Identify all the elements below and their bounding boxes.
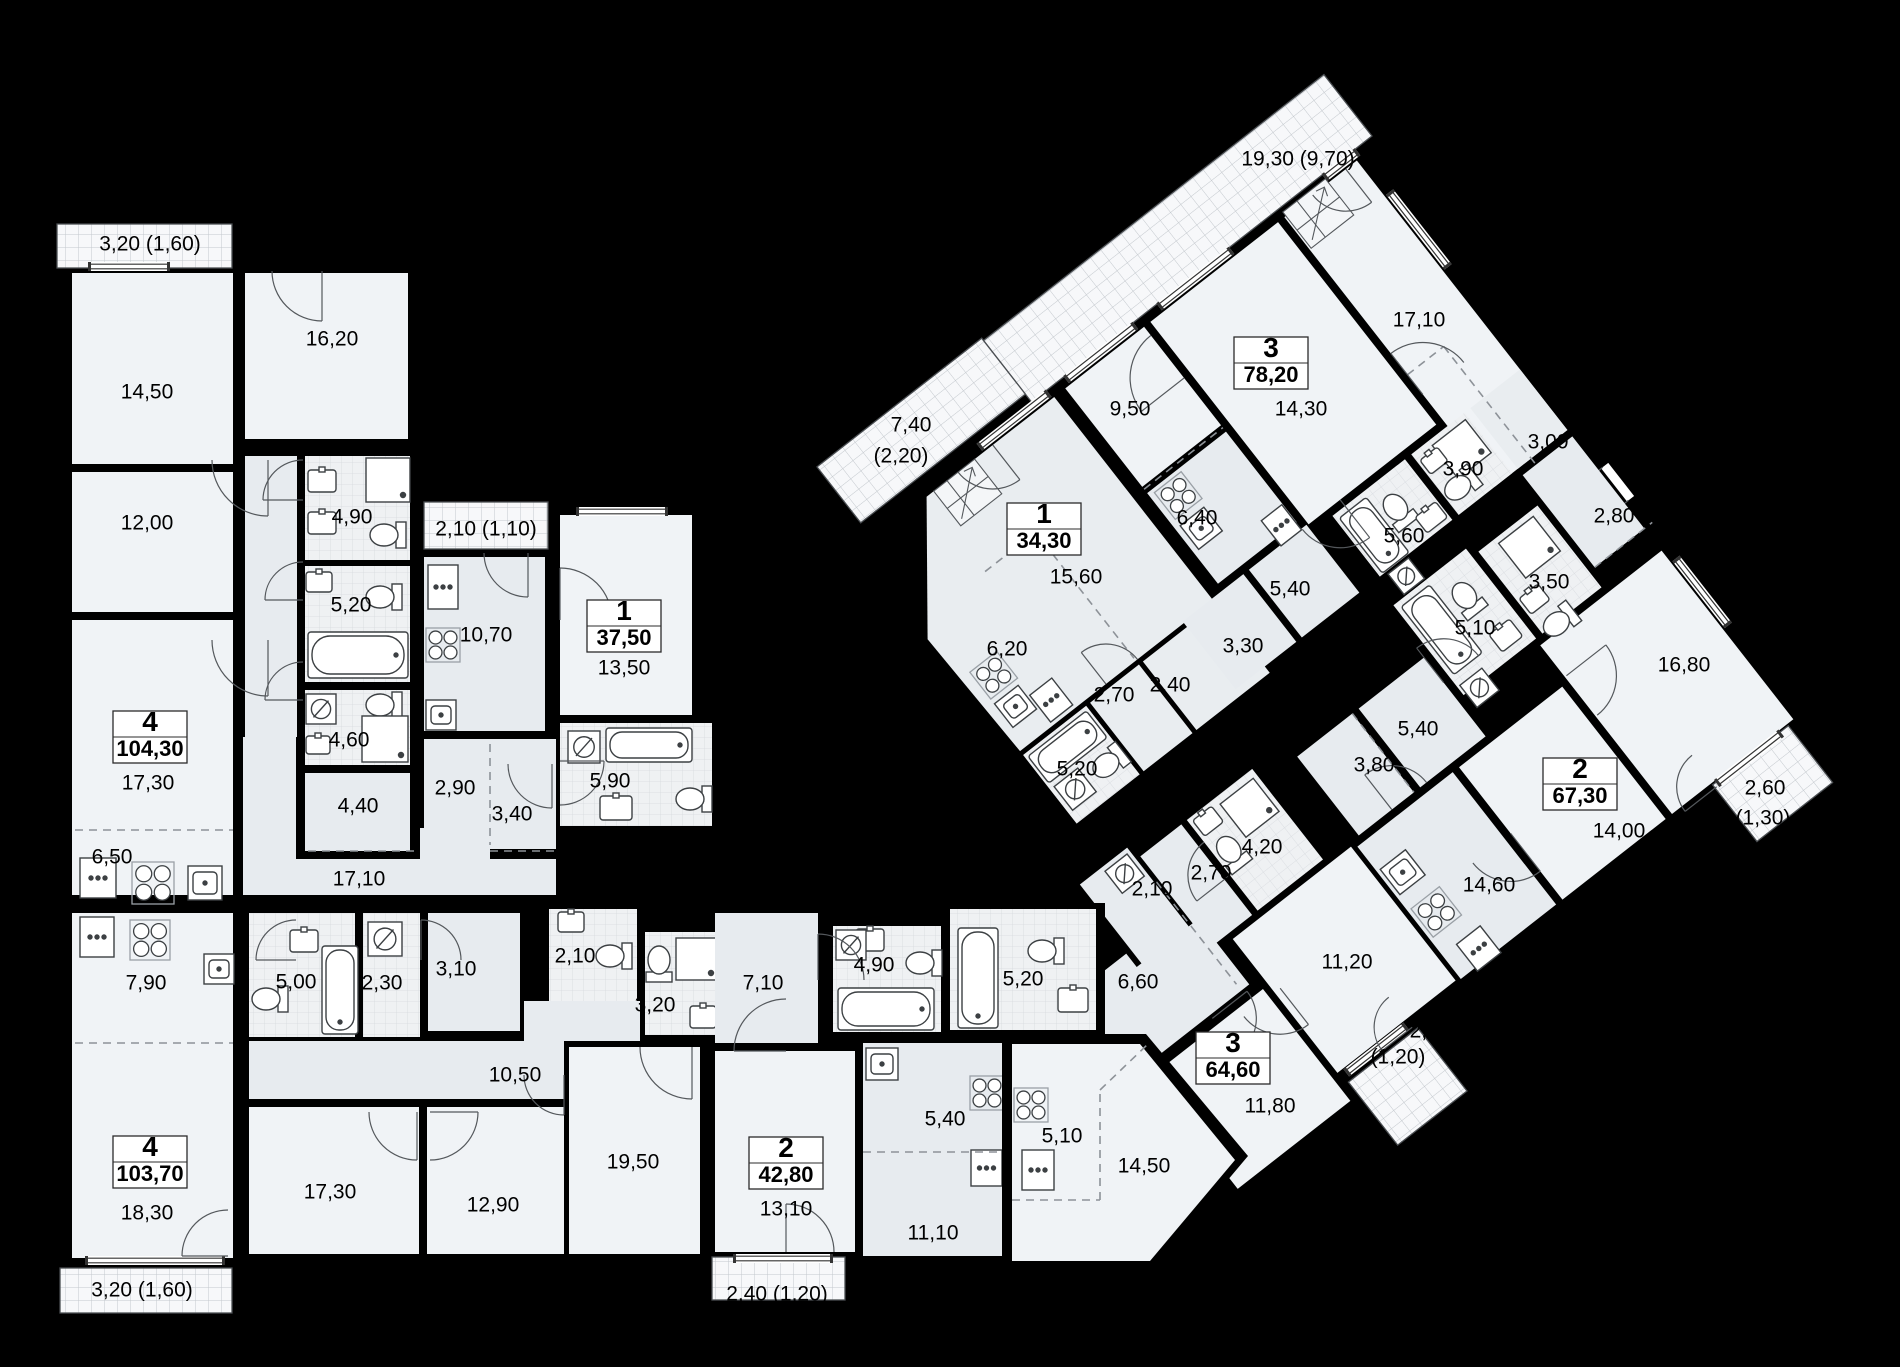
svg-text:3,80: 3,80 [1354, 753, 1395, 776]
svg-text:2,40: 2,40 [1150, 673, 1191, 696]
svg-text:4: 4 [142, 706, 158, 737]
svg-text:19,50: 19,50 [607, 1150, 660, 1173]
svg-text:2,10: 2,10 [1132, 877, 1173, 900]
svg-text:3: 3 [1263, 332, 1279, 363]
svg-text:5,20: 5,20 [1003, 967, 1044, 990]
svg-text:11,80: 11,80 [1245, 1094, 1296, 1117]
svg-text:5,10: 5,10 [1042, 1124, 1083, 1147]
svg-text:2,70: 2,70 [1191, 861, 1232, 884]
svg-text:6,50: 6,50 [92, 845, 133, 868]
svg-text:1: 1 [1036, 498, 1052, 529]
svg-text:14,50: 14,50 [1118, 1154, 1171, 1177]
svg-text:103,70: 103,70 [116, 1161, 183, 1186]
svg-text:2,40 (1,20): 2,40 (1,20) [726, 1282, 828, 1305]
svg-text:3,40: 3,40 [492, 802, 533, 825]
svg-text:11,10: 11,10 [908, 1221, 959, 1244]
svg-text:16,80: 16,80 [1658, 653, 1711, 676]
svg-text:6,40: 6,40 [1177, 506, 1218, 529]
svg-text:4,40: 4,40 [338, 794, 379, 817]
svg-text:13,50: 13,50 [598, 656, 651, 679]
svg-text:11,20: 11,20 [1322, 950, 1373, 973]
svg-text:3,20 (1,60): 3,20 (1,60) [91, 1278, 193, 1301]
svg-text:5,20: 5,20 [331, 593, 372, 616]
svg-text:19,30 (9,70): 19,30 (9,70) [1241, 147, 1354, 170]
svg-text:2,70: 2,70 [1094, 683, 1135, 706]
svg-text:2,10: 2,10 [555, 944, 596, 967]
svg-text:18,30: 18,30 [121, 1201, 174, 1224]
svg-text:4,90: 4,90 [854, 953, 895, 976]
svg-text:5,90: 5,90 [590, 769, 631, 792]
svg-text:2,80: 2,80 [1594, 504, 1635, 527]
svg-text:(1,30): (1,30) [1736, 806, 1791, 829]
svg-text:5,10: 5,10 [1455, 616, 1496, 639]
svg-text:1: 1 [616, 595, 632, 626]
svg-text:17,30: 17,30 [304, 1180, 357, 1203]
svg-text:2: 2 [778, 1132, 794, 1163]
svg-text:3,20 (1,60): 3,20 (1,60) [99, 232, 201, 255]
svg-text:2,30: 2,30 [362, 971, 403, 994]
svg-text:12,90: 12,90 [467, 1193, 520, 1216]
svg-text:5,40: 5,40 [925, 1107, 966, 1130]
svg-text:17,30: 17,30 [122, 771, 175, 794]
svg-text:4,90: 4,90 [332, 505, 373, 528]
svg-text:5,00: 5,00 [276, 970, 317, 993]
svg-text:6,20: 6,20 [987, 637, 1028, 660]
svg-text:15,60: 15,60 [1050, 565, 1103, 588]
svg-text:9,50: 9,50 [1110, 397, 1151, 420]
svg-text:34,30: 34,30 [1016, 528, 1071, 553]
svg-text:37,50: 37,50 [596, 625, 651, 650]
svg-text:3: 3 [1225, 1027, 1241, 1058]
svg-text:5,40: 5,40 [1398, 717, 1439, 740]
svg-text:4: 4 [142, 1131, 158, 1162]
svg-text:10,70: 10,70 [460, 623, 513, 646]
svg-text:14,60: 14,60 [1463, 873, 1516, 896]
svg-text:14,30: 14,30 [1275, 397, 1328, 420]
svg-text:7,10: 7,10 [743, 971, 784, 994]
svg-text:17,10: 17,10 [333, 867, 386, 890]
svg-text:14,00: 14,00 [1593, 819, 1646, 842]
svg-text:10,50: 10,50 [489, 1063, 542, 1086]
svg-text:16,20: 16,20 [306, 327, 359, 350]
svg-text:7,90: 7,90 [126, 971, 167, 994]
svg-text:3,50: 3,50 [1529, 570, 1570, 593]
svg-text:4,60: 4,60 [329, 728, 370, 751]
svg-text:5,60: 5,60 [1384, 524, 1425, 547]
svg-text:14,50: 14,50 [121, 380, 174, 403]
svg-text:5,40: 5,40 [1270, 577, 1311, 600]
svg-text:(2,20): (2,20) [874, 444, 929, 467]
svg-text:(1,20): (1,20) [1371, 1045, 1426, 1068]
svg-text:78,20: 78,20 [1243, 362, 1298, 387]
svg-text:12,00: 12,00 [121, 511, 174, 534]
svg-text:3,30: 3,30 [1223, 634, 1264, 657]
svg-text:2,60: 2,60 [1745, 776, 1786, 799]
svg-text:2,90: 2,90 [435, 776, 476, 799]
svg-text:13,10: 13,10 [760, 1197, 813, 1220]
svg-text:3,20: 3,20 [635, 993, 676, 1016]
svg-text:3,00: 3,00 [1528, 430, 1569, 453]
svg-text:4,20: 4,20 [1242, 835, 1283, 858]
svg-text:104,30: 104,30 [116, 736, 183, 761]
svg-text:3,90: 3,90 [1443, 457, 1484, 480]
svg-text:67,30: 67,30 [1552, 783, 1607, 808]
svg-text:2,10 (1,10): 2,10 (1,10) [435, 517, 537, 540]
svg-text:6,60: 6,60 [1118, 970, 1159, 993]
svg-text:42,80: 42,80 [758, 1162, 813, 1187]
svg-text:3,10: 3,10 [436, 957, 477, 980]
svg-text:2: 2 [1572, 753, 1588, 784]
svg-text:7,40: 7,40 [891, 413, 932, 436]
svg-text:5,20: 5,20 [1057, 757, 1098, 780]
svg-text:17,10: 17,10 [1393, 308, 1446, 331]
svg-text:2,40: 2,40 [1410, 1019, 1451, 1042]
svg-text:64,60: 64,60 [1205, 1057, 1260, 1082]
